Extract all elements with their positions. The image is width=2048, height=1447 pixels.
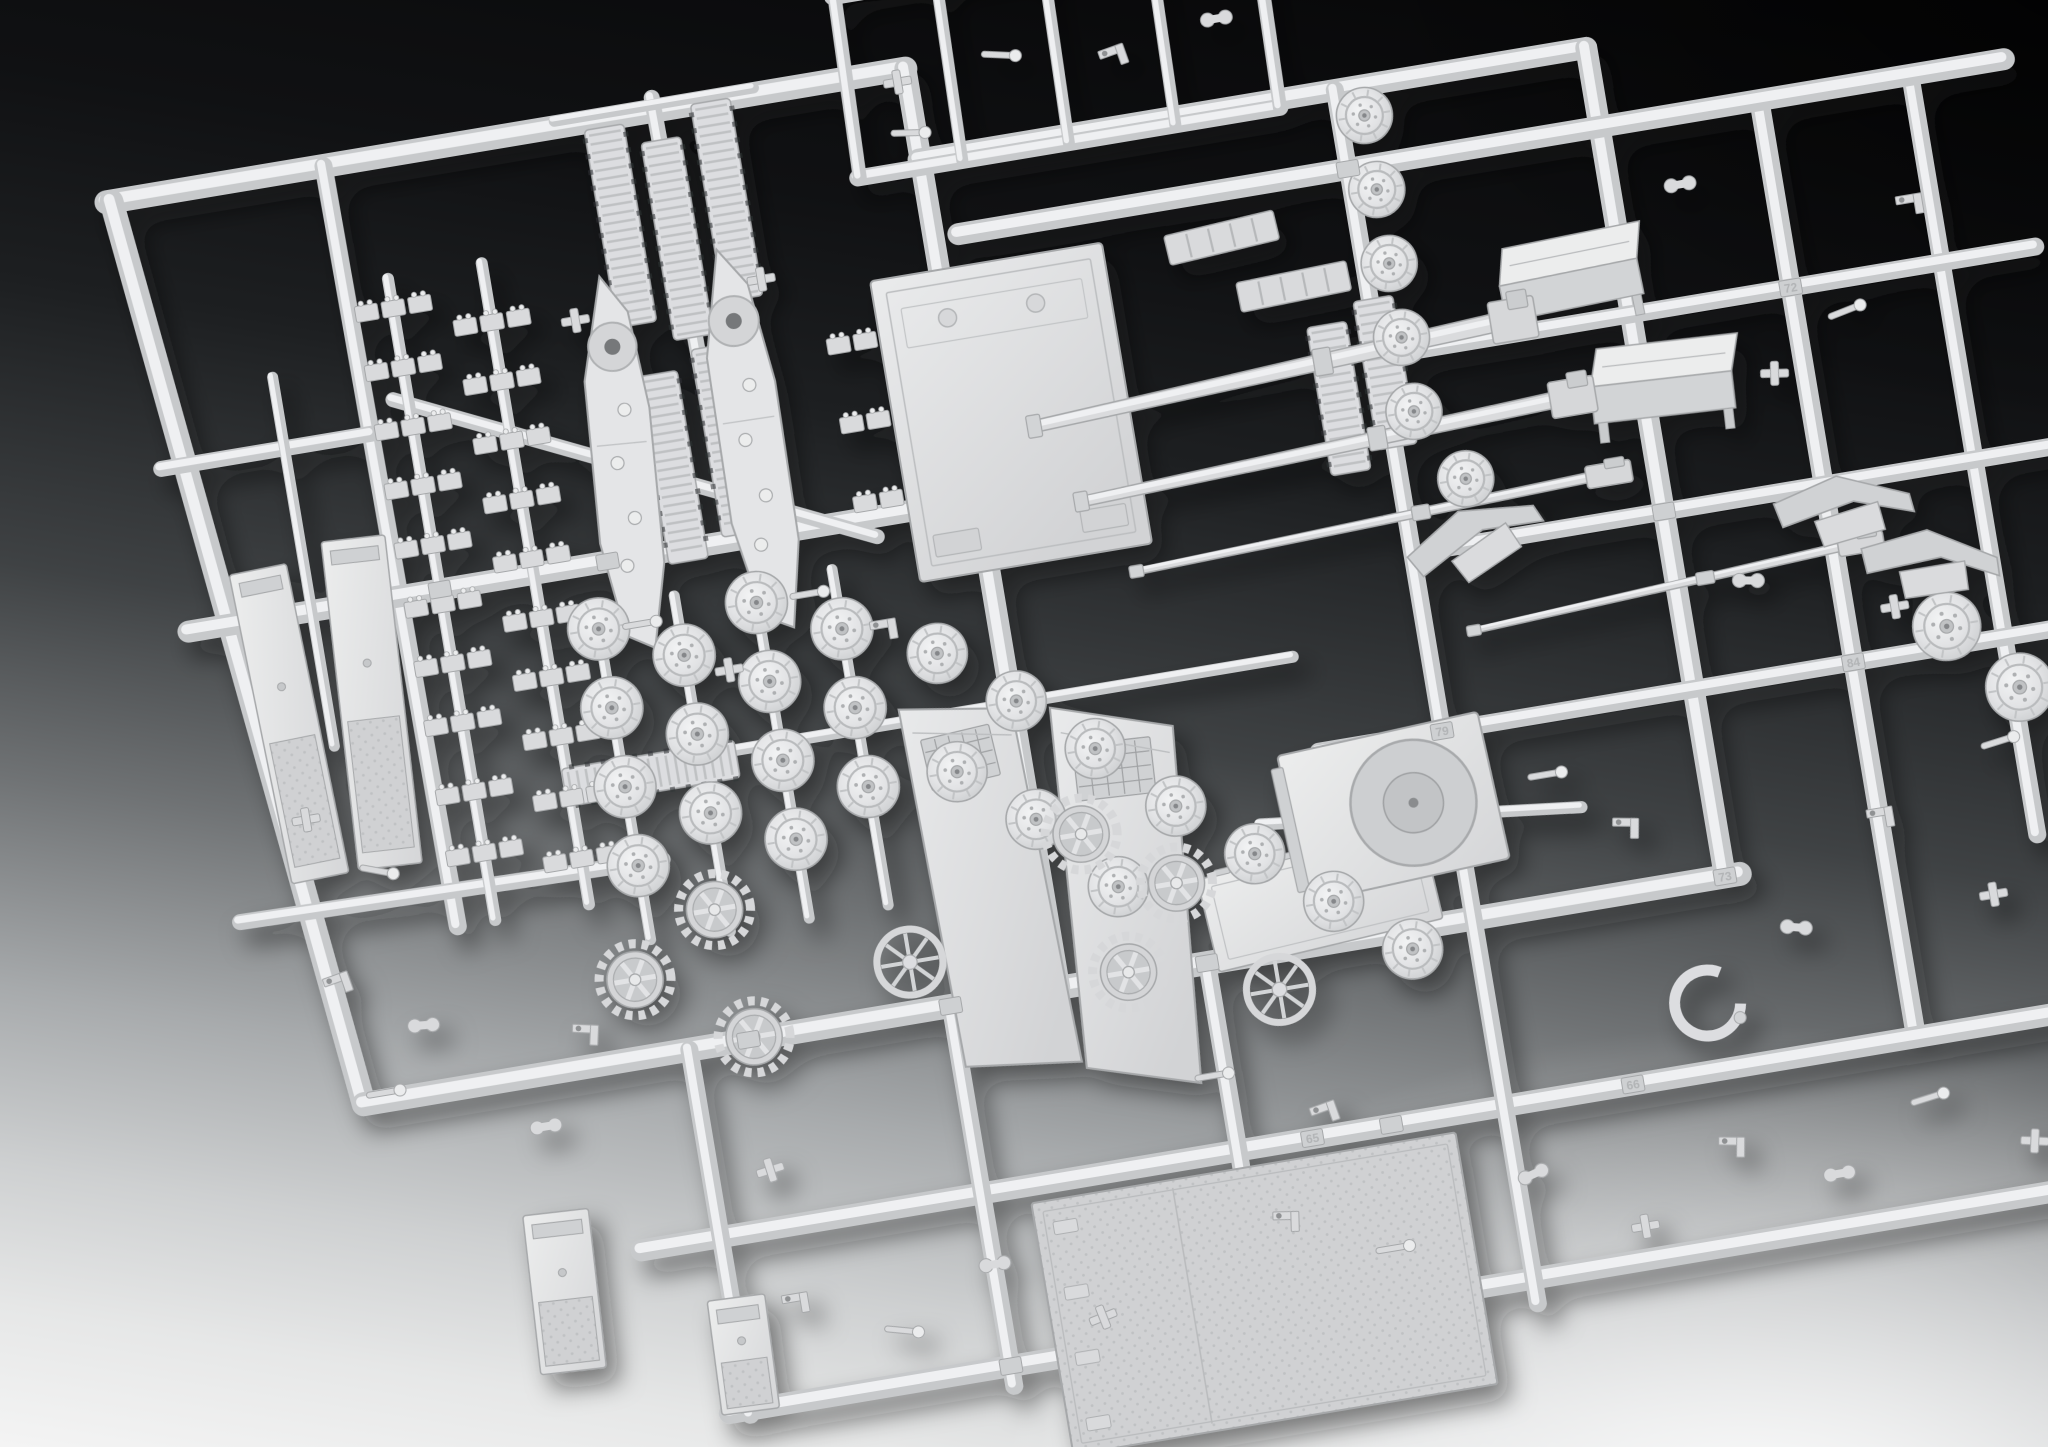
idler-wheel [872, 924, 948, 1000]
gate-tab: 72 [1778, 278, 1802, 297]
small-part [2020, 1128, 2048, 1153]
small-part [1527, 765, 1568, 783]
road-wheel [1981, 648, 2048, 726]
studio-background: 657984726673 [0, 0, 2048, 1447]
road-wheel [675, 777, 746, 848]
small-part [1823, 1164, 1857, 1183]
small-part [1978, 880, 2010, 908]
ladder-parts [1162, 199, 1352, 323]
road-wheel [734, 646, 805, 717]
gate-tab-number: 73 [1717, 869, 1733, 885]
small-part [981, 48, 1021, 62]
small-part [1760, 361, 1789, 386]
gate-tab [1379, 1115, 1403, 1134]
gate-tab [939, 996, 963, 1015]
small-part [529, 1117, 563, 1136]
small-part [869, 618, 898, 642]
gate-tab: 84 [1841, 653, 1865, 672]
gate-tab: 65 [1300, 1128, 1324, 1147]
small-part [1780, 919, 1813, 935]
small-part [753, 1154, 787, 1185]
gate-tab [999, 1356, 1023, 1375]
road-wheel [833, 751, 904, 822]
gate-tab [1652, 502, 1676, 521]
ladder-part [1236, 261, 1352, 313]
bench-part [1586, 333, 1748, 444]
gate-tab-number: 65 [1305, 1131, 1321, 1147]
small-part [1909, 1086, 1951, 1109]
small-part [1630, 1212, 1662, 1240]
gate-tab [595, 552, 619, 571]
road-wheel [760, 804, 831, 875]
ring-part [1654, 949, 1761, 1056]
gate-tab [736, 1030, 760, 1049]
sprue-photo: 657984726673 [0, 0, 2048, 1447]
small-part [1612, 818, 1638, 838]
road-wheel [648, 619, 719, 690]
road-wheel [806, 593, 877, 664]
small-part [1663, 175, 1697, 194]
small-part [1732, 573, 1764, 587]
ladder-part [1164, 210, 1280, 265]
small-part [572, 1024, 599, 1045]
gate-tab-number: 66 [1625, 1077, 1641, 1093]
drive-sprocket [594, 938, 677, 1021]
gate-tab: 66 [1621, 1075, 1645, 1094]
gate-tab: 79 [1430, 721, 1454, 740]
small-part [1895, 193, 1924, 217]
fender-part [523, 1208, 607, 1374]
road-wheel [903, 619, 972, 688]
small-part [407, 1017, 440, 1033]
gate-tab: 73 [1713, 867, 1737, 886]
small-part [1098, 43, 1129, 71]
drive-sprocket [673, 868, 756, 951]
fender-part [707, 1294, 780, 1416]
gate-tab [1195, 953, 1219, 972]
road-wheel [603, 830, 674, 901]
small-part [1199, 9, 1233, 28]
small-part [1719, 1137, 1745, 1157]
small-part [1826, 297, 1868, 323]
gate-tab [428, 580, 452, 599]
gate-tab [1336, 159, 1360, 178]
small-part [560, 306, 592, 334]
small-part [884, 1323, 925, 1339]
gate-tab-number: 84 [1846, 655, 1862, 671]
small-part [781, 1292, 810, 1316]
gate-tab-number: 72 [1783, 280, 1799, 296]
gate-tab-number: 79 [1434, 724, 1450, 740]
